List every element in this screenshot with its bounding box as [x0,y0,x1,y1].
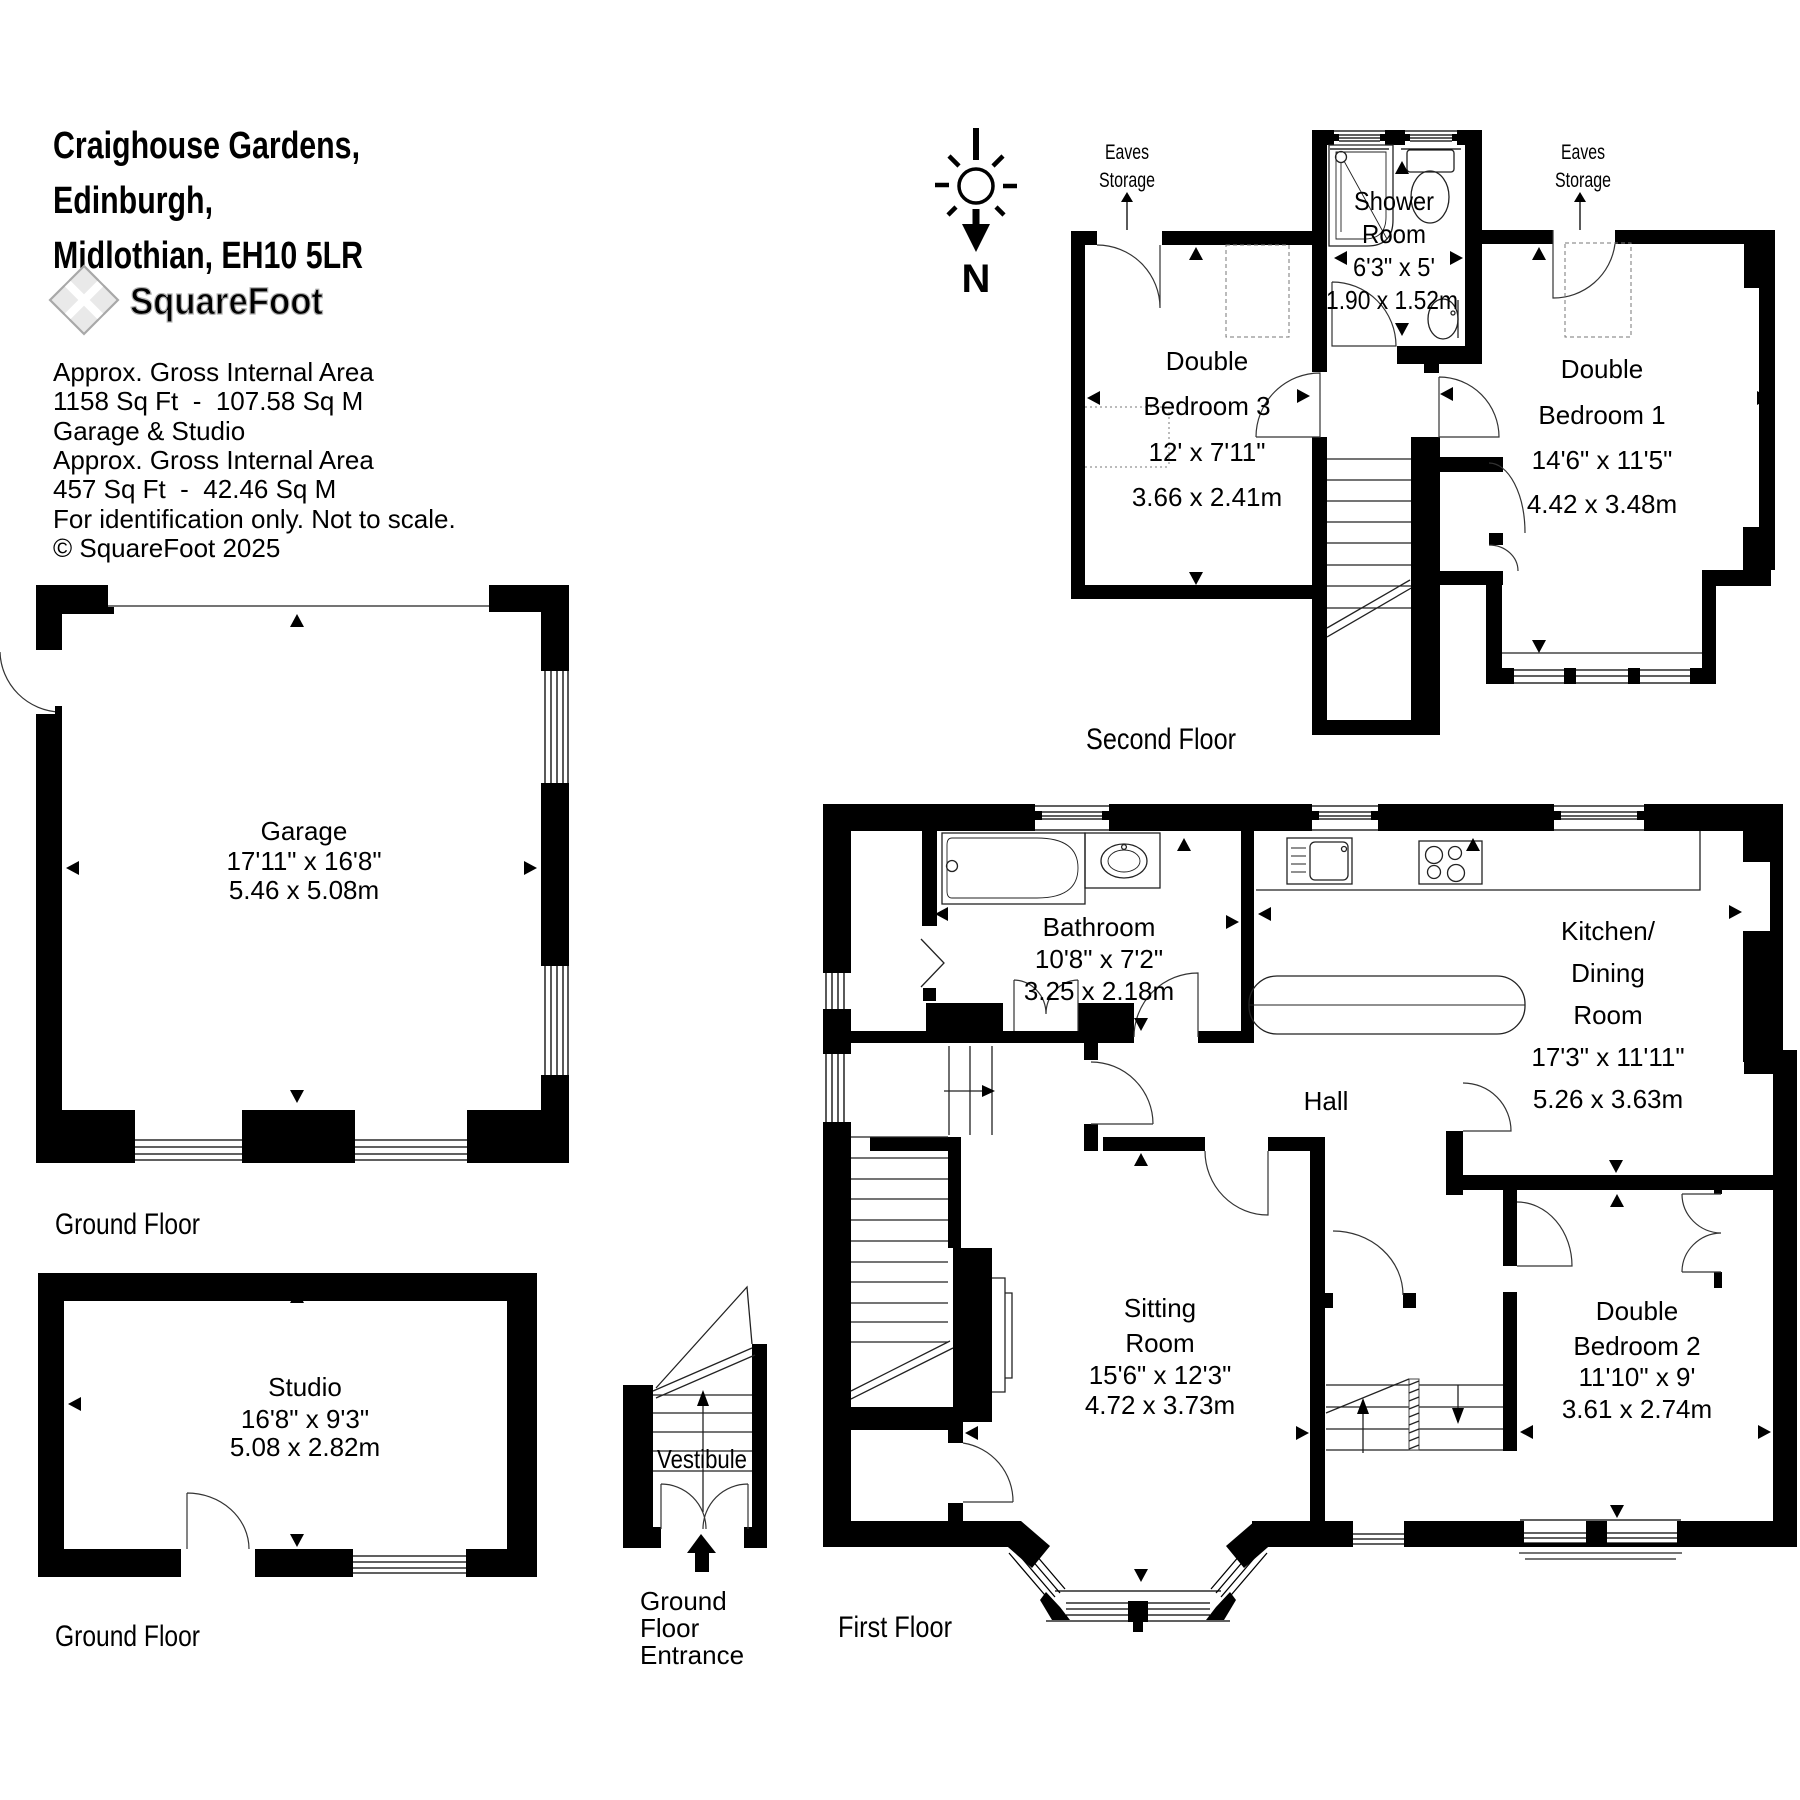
svg-text:Studio: Studio [268,1372,342,1402]
svg-text:Midlothian, EH10 5LR: Midlothian, EH10 5LR [53,235,363,277]
svg-text:Eaves: Eaves [1105,141,1149,164]
svg-text:Eaves: Eaves [1561,141,1605,164]
svg-text:Dining: Dining [1571,958,1645,988]
svg-text:Kitchen/: Kitchen/ [1561,916,1656,946]
svg-text:11'10" x 9': 11'10" x 9' [1579,1362,1696,1392]
svg-text:For identification only. Not t: For identification only. Not to scale. [53,504,456,534]
svg-text:3.25 x 2.18m: 3.25 x 2.18m [1024,976,1174,1006]
svg-text:© SquareFoot 2025: © SquareFoot 2025 [53,533,280,563]
svg-text:Bedroom 1: Bedroom 1 [1538,400,1665,430]
svg-text:Room: Room [1573,1000,1642,1030]
svg-text:10'8" x 7'2": 10'8" x 7'2" [1035,944,1163,974]
svg-text:5.08 x 2.82m: 5.08 x 2.82m [230,1432,380,1462]
svg-text:Vestibule: Vestibule [657,1444,747,1474]
svg-text:Craighouse Gardens,: Craighouse Gardens, [53,125,360,167]
svg-text:Bathroom: Bathroom [1043,912,1156,942]
svg-text:17'11" x 16'8": 17'11" x 16'8" [226,846,381,876]
svg-text:First Floor: First Floor [838,1611,952,1644]
svg-text:Approx. Gross Internal Area: Approx. Gross Internal Area [53,357,374,387]
svg-text:Hall: Hall [1304,1086,1349,1116]
svg-text:14'6" x 11'5": 14'6" x 11'5" [1532,445,1673,475]
svg-text:Storage: Storage [1555,169,1611,192]
svg-text:3.61 x 2.74m: 3.61 x 2.74m [1562,1394,1712,1424]
svg-text:Garage & Studio: Garage & Studio [53,416,245,446]
svg-text:12' x 7'11": 12' x 7'11" [1149,437,1266,467]
svg-text:SquareFoot: SquareFoot [130,281,323,323]
svg-text:6'3" x 5': 6'3" x 5' [1353,252,1435,282]
svg-text:Floor: Floor [640,1613,700,1643]
svg-text:Shower: Shower [1354,186,1434,216]
svg-text:Storage: Storage [1099,169,1155,192]
svg-text:Edinburgh,: Edinburgh, [53,180,213,222]
svg-text:Approx. Gross Internal Area: Approx. Gross Internal Area [53,445,374,475]
svg-text:Entrance: Entrance [640,1640,744,1670]
svg-text:5.26 x 3.63m: 5.26 x 3.63m [1533,1084,1683,1114]
svg-text:1.90 x 1.52m: 1.90 x 1.52m [1326,285,1458,315]
svg-text:4.72 x 3.73m: 4.72 x 3.73m [1085,1390,1235,1420]
svg-text:16'8" x 9'3": 16'8" x 9'3" [241,1404,369,1434]
svg-text:5.46 x 5.08m: 5.46 x 5.08m [229,875,379,905]
svg-text:Sitting: Sitting [1124,1293,1196,1323]
svg-text:Ground Floor: Ground Floor [55,1620,200,1653]
svg-text:Garage: Garage [261,816,348,846]
svg-text:Double: Double [1596,1296,1678,1326]
svg-text:15'6" x 12'3": 15'6" x 12'3" [1089,1360,1232,1390]
svg-text:N: N [962,257,991,301]
svg-text:3.66 x 2.41m: 3.66 x 2.41m [1132,482,1282,512]
svg-text:Double: Double [1561,354,1643,384]
svg-text:17'3" x 11'11": 17'3" x 11'11" [1531,1042,1684,1072]
svg-text:Second Floor: Second Floor [1086,723,1236,756]
svg-text:Ground: Ground [640,1586,727,1616]
svg-text:457 Sq Ft - 42.46 Sq M: 457 Sq Ft - 42.46 Sq M [53,474,336,504]
svg-text:4.42 x 3.48m: 4.42 x 3.48m [1527,489,1677,519]
svg-text:1158 Sq Ft - 107.58 Sq M: 1158 Sq Ft - 107.58 Sq M [53,386,363,416]
svg-text:Bedroom 2: Bedroom 2 [1573,1331,1700,1361]
svg-text:Room: Room [1362,219,1426,249]
svg-text:Double: Double [1166,346,1248,376]
svg-text:Ground Floor: Ground Floor [55,1208,200,1241]
svg-text:Bedroom 3: Bedroom 3 [1143,391,1270,421]
svg-text:Room: Room [1125,1328,1194,1358]
